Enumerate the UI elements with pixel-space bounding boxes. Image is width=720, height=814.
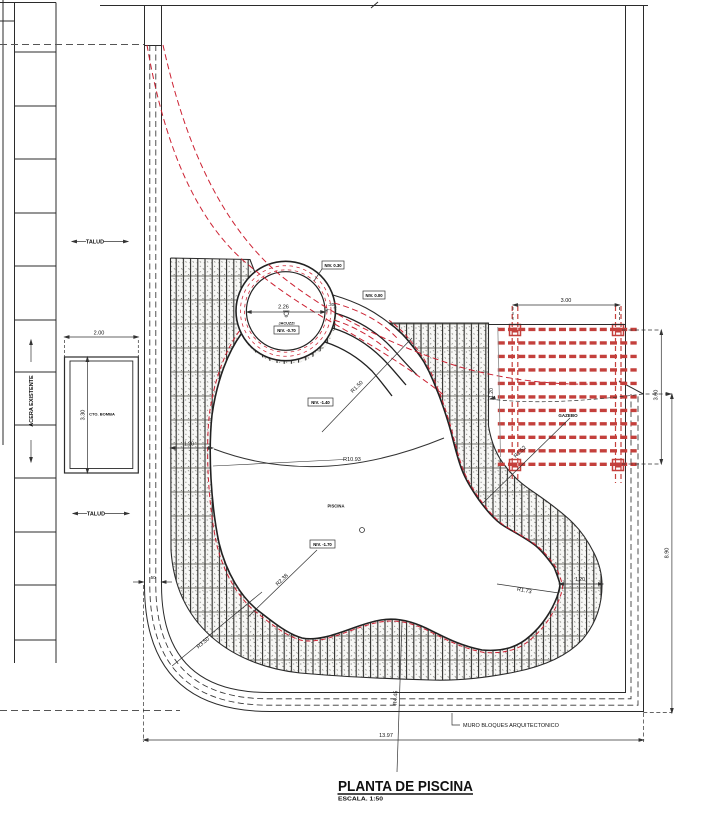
svg-text:13.97: 13.97 [379, 733, 393, 739]
svg-text:MURO BLOQUES ARQUITECTONICO: MURO BLOQUES ARQUITECTONICO [463, 723, 560, 729]
svg-text:ESCALA. 1:50: ESCALA. 1:50 [338, 797, 383, 803]
svg-text:CTO. BOMBA: CTO. BOMBA [89, 412, 115, 417]
svg-text:PLANTA DE PISCINA: PLANTA DE PISCINA [338, 778, 473, 795]
svg-text:GAZEBO: GAZEBO [558, 413, 578, 418]
svg-text:2.26: 2.26 [278, 305, 289, 311]
svg-text:1.20: 1.20 [489, 388, 495, 398]
svg-text:NIV. 0.00: NIV. 0.00 [365, 293, 383, 298]
svg-text:8.90: 8.90 [665, 548, 671, 559]
svg-text:ACERA EXISTENTE: ACERA EXISTENTE [29, 375, 35, 427]
svg-text:JACUZZI: JACUZZI [278, 322, 294, 326]
svg-text:1.20: 1.20 [575, 577, 585, 583]
svg-text:TALUD: TALUD [86, 240, 104, 246]
svg-text:2.00: 2.00 [94, 331, 105, 337]
svg-text:1.20: 1.20 [184, 442, 194, 448]
svg-text:NIV. -0.70: NIV. -0.70 [277, 328, 296, 333]
svg-text:NIV. -1.40: NIV. -1.40 [311, 400, 330, 405]
svg-text:3.00: 3.00 [561, 298, 572, 304]
svg-text:NIV. -1.70: NIV. -1.70 [313, 542, 332, 547]
svg-text:PISCINA: PISCINA [328, 504, 345, 509]
svg-text:R10.93: R10.93 [343, 457, 361, 463]
svg-text:TALUD: TALUD [87, 512, 105, 518]
svg-text:3.60: 3.60 [654, 390, 660, 401]
svg-text:.30: .30 [328, 302, 335, 307]
svg-text:R4.45: R4.45 [393, 690, 400, 705]
svg-text:.50: .50 [149, 575, 156, 580]
svg-text:3.30: 3.30 [81, 410, 87, 421]
svg-text:NIV. 0.30: NIV. 0.30 [324, 263, 342, 268]
